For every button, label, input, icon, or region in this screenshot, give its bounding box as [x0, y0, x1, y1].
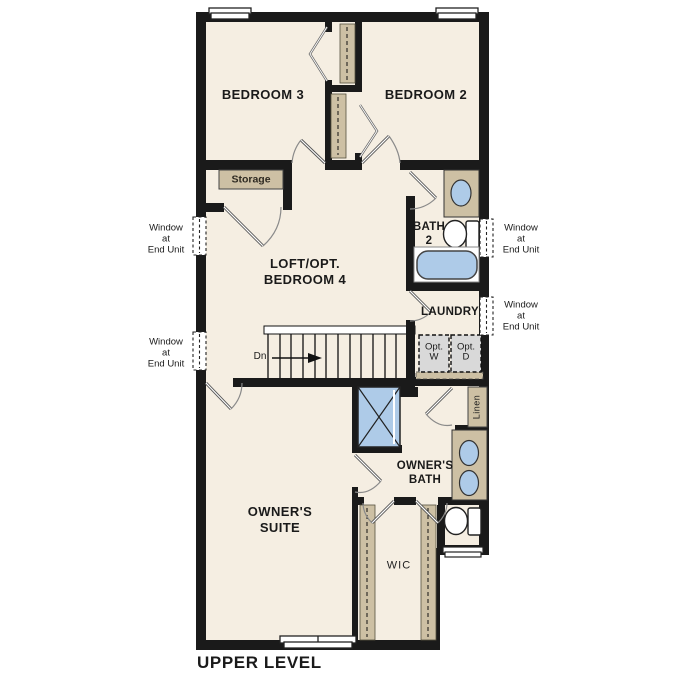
floorplan-upper-level: BEDROOM 3 BEDROOM 2 Storage LOFT/OPT. BE… [0, 0, 687, 687]
owners-toilet [445, 508, 482, 536]
linen-closet [468, 387, 487, 427]
bedroom2-window [436, 8, 478, 19]
bedroom2-closet-rod [331, 94, 346, 158]
laundry-counter [416, 372, 483, 379]
optional-washer-box [419, 335, 449, 372]
owners-suite-window [280, 636, 356, 648]
floorplan-drawing [0, 0, 687, 687]
toilet-room-window [443, 547, 483, 557]
bath2-toilet [444, 221, 480, 249]
optional-dryer-box [451, 335, 481, 372]
bath2-bathtub [414, 247, 479, 282]
owners-shower [358, 387, 400, 447]
storage-label-box [219, 170, 283, 189]
bedroom3-window [209, 8, 251, 19]
bedroom3-closet-rod [340, 24, 355, 83]
owners-double-vanity [452, 430, 487, 500]
bath2-vanity-sink [444, 170, 479, 217]
